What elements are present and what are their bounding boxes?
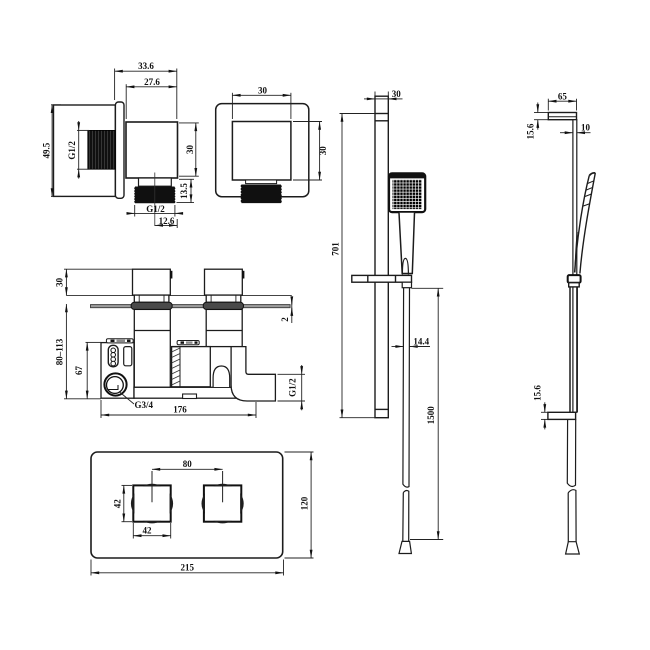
svg-text:65: 65 [558, 91, 568, 101]
svg-text:33.6: 33.6 [138, 61, 154, 71]
svg-text:42: 42 [143, 526, 153, 536]
svg-text:14.4: 14.4 [413, 337, 429, 347]
svg-text:30: 30 [55, 277, 65, 287]
svg-text:215: 215 [181, 563, 195, 573]
svg-text:1500: 1500 [426, 406, 436, 425]
svg-text:30: 30 [258, 85, 268, 95]
svg-text:120: 120 [300, 496, 310, 510]
svg-text:13.5: 13.5 [179, 183, 189, 199]
svg-text:49.5: 49.5 [41, 142, 51, 158]
svg-text:G1/2: G1/2 [146, 204, 165, 214]
svg-text:30: 30 [318, 146, 328, 156]
svg-text:67: 67 [74, 366, 84, 376]
svg-text:G3/4: G3/4 [135, 400, 154, 410]
svg-text:80: 80 [183, 459, 193, 469]
svg-text:2: 2 [280, 317, 290, 322]
svg-text:15.6: 15.6 [525, 123, 535, 139]
svg-text:12.6: 12.6 [159, 216, 175, 226]
svg-text:10: 10 [581, 123, 591, 133]
svg-text:80–113: 80–113 [55, 338, 65, 365]
svg-text:176: 176 [173, 405, 187, 415]
svg-text:30: 30 [392, 89, 402, 99]
svg-text:42: 42 [112, 499, 122, 509]
svg-text:30: 30 [185, 145, 195, 155]
svg-text:701: 701 [330, 242, 340, 256]
svg-text:G1/2: G1/2 [288, 378, 298, 397]
svg-text:G1/2: G1/2 [67, 141, 77, 160]
svg-text:27.6: 27.6 [144, 77, 160, 87]
svg-text:15.6: 15.6 [532, 385, 542, 401]
